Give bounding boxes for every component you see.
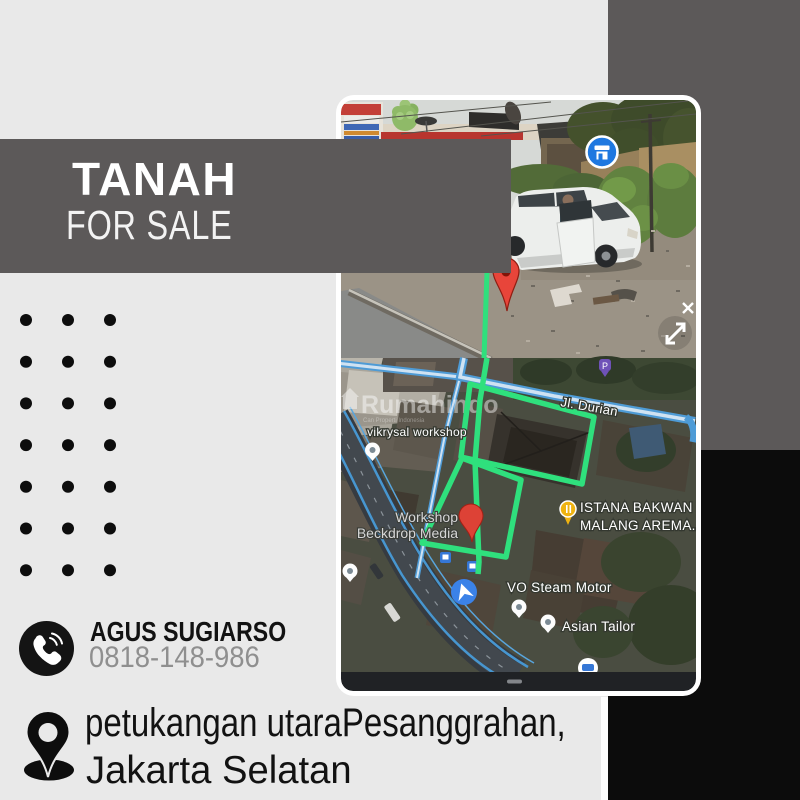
svg-text:Beckdrop Media: Beckdrop Media: [357, 525, 458, 541]
svg-text:P: P: [602, 361, 608, 371]
svg-text:ISTANA BAKWAN: ISTANA BAKWAN: [580, 500, 693, 515]
svg-text:VO Steam Motor: VO Steam Motor: [507, 580, 612, 595]
svg-text:vikrysal workshop: vikrysal workshop: [367, 425, 467, 439]
svg-text:Asian Tailor: Asian Tailor: [562, 619, 635, 634]
svg-text:Workshop: Workshop: [395, 509, 458, 525]
svg-text:MALANG AREMA...: MALANG AREMA...: [580, 518, 696, 533]
svg-text:Can Properti Indonesia: Can Properti Indonesia: [363, 418, 425, 424]
